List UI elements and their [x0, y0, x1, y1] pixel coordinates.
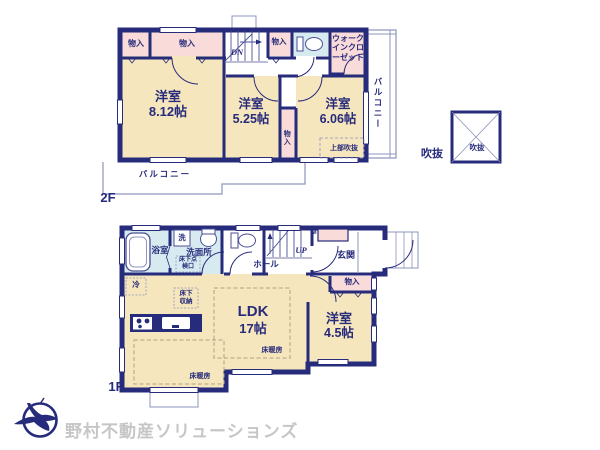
fridge-label: 冷: [127, 281, 145, 290]
room-812-name: 洋室: [118, 89, 218, 104]
balcony-right-label: バルコニー: [373, 58, 383, 148]
void-legend-label: 吹抜: [414, 148, 450, 161]
floor-heating-label-b: 床暖房: [252, 347, 292, 355]
closet-label-2f-b: 物入: [152, 39, 222, 48]
kitchen-counter: [130, 314, 202, 332]
walk-in-closet-label: ウォークインクローゼット: [329, 34, 367, 62]
ldk-label: LDK 17帖: [222, 303, 284, 336]
sink-icon: [201, 229, 217, 247]
closet-label-2f-a: 物入: [122, 39, 150, 48]
balcony-bottom-label: バルコニー: [130, 169, 200, 179]
ldk-name: LDK: [222, 303, 284, 321]
room-45-size: 4.5帖: [308, 326, 370, 341]
stairs-up-label: UP: [288, 245, 314, 255]
toilet-icon-1f: [231, 233, 256, 248]
company-name: 野村不動産ソリューションズ: [65, 417, 298, 442]
meter-box: [318, 229, 348, 241]
floor-1f-label: 1F: [102, 379, 130, 394]
entrance-label: 玄関: [330, 250, 362, 261]
room-45-name: 洋室: [308, 311, 370, 326]
bath-label: 浴室: [146, 245, 174, 255]
room-606-label: 洋室 6.06帖: [303, 97, 373, 127]
floor-heating-label-a: 床暖房: [180, 373, 220, 381]
underfloor-hatch-label: 床下点検口: [177, 257, 199, 271]
room-606-name: 洋室: [303, 97, 373, 112]
room-45-label: 洋室 4.5帖: [308, 311, 370, 341]
room-525-size: 5.25帖: [221, 112, 281, 127]
company-logo: [14, 398, 58, 437]
washroom-label: 洗面所: [182, 247, 216, 257]
room-812-label: 洋室 8.12帖: [118, 89, 218, 120]
ldk-size: 17帖: [222, 321, 284, 336]
hall-label: ホール: [246, 259, 286, 269]
stairs-down-label: DN: [226, 47, 248, 57]
upper-void-label: 上部吹抜: [324, 145, 364, 153]
underfloor-storage-label: 床下収納: [178, 290, 194, 305]
closet-label-2f-strip: 物入: [282, 116, 290, 160]
room-525-label: 洋室 5.25帖: [221, 97, 281, 127]
void-legend-inner-label: 吹抜: [459, 144, 495, 153]
floorplan-drawing: [0, 0, 600, 450]
floor-2f-label: 2F: [94, 190, 122, 205]
room-525-name: 洋室: [221, 97, 281, 112]
terrace-step: [150, 392, 198, 407]
toilet-icon-2f: [297, 37, 323, 51]
room-812-size: 8.12帖: [118, 104, 218, 119]
floorplan-page: 物入 物入 DN 物入 ウォークインクローゼット バルコニー 洋室 8.12帖 …: [0, 0, 600, 450]
void-legend-box: [452, 112, 500, 162]
closet-label-2f-c: 物入: [266, 38, 292, 47]
laundry-label: 洗: [175, 234, 189, 243]
room-606-size: 6.06帖: [303, 112, 373, 127]
closet-label-1f: 物入: [334, 278, 370, 287]
meter-label: M: [309, 229, 319, 237]
